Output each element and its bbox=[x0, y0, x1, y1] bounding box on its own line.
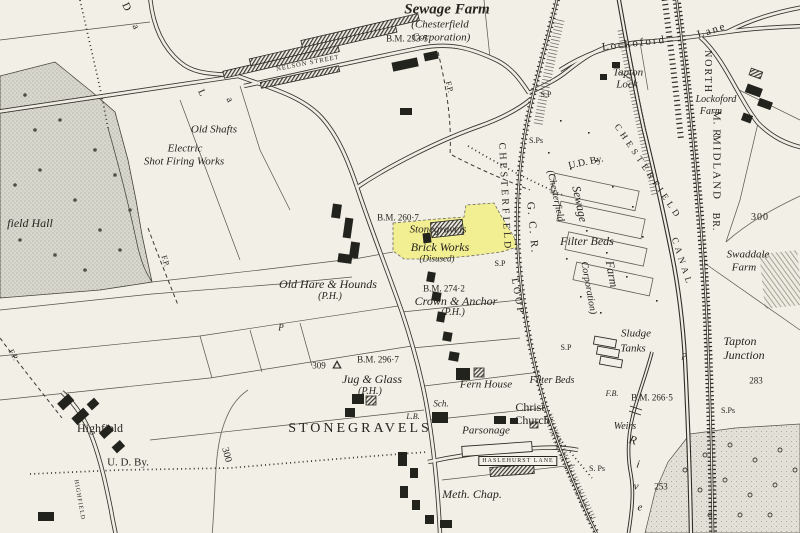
river bbox=[628, 352, 652, 533]
map-canvas: Sewage Farm(ChesterfieldCorporation)B.M.… bbox=[0, 0, 800, 533]
trig-point bbox=[333, 361, 341, 368]
parkland-area bbox=[0, 62, 152, 298]
map-linework bbox=[0, 0, 800, 533]
orchard-area bbox=[645, 250, 800, 533]
sewage-works bbox=[548, 120, 658, 368]
